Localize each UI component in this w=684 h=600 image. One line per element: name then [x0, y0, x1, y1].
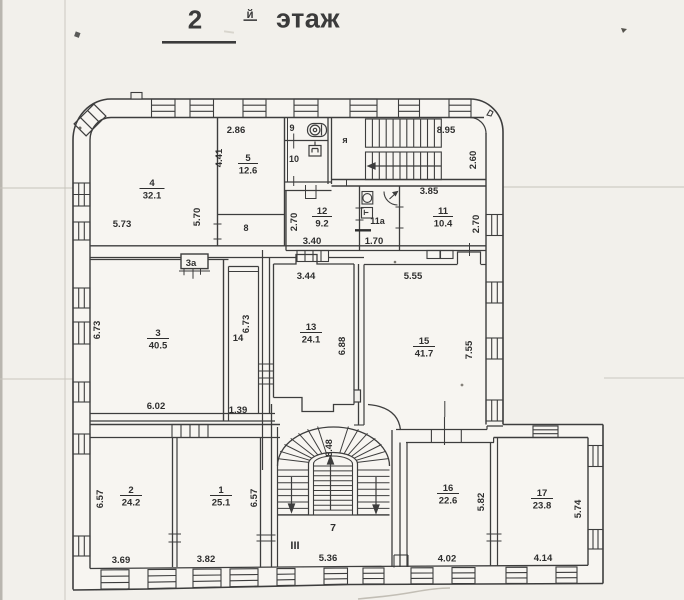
svg-text:3.82: 3.82: [197, 554, 216, 565]
svg-text:III: III: [290, 540, 299, 552]
svg-text:2.86: 2.86: [227, 125, 246, 136]
svg-text:2.60: 2.60: [468, 151, 479, 170]
svg-text:14: 14: [233, 333, 244, 344]
svg-text:4: 4: [149, 178, 155, 189]
svg-text:5.70: 5.70: [192, 208, 203, 227]
svg-text:12: 12: [317, 206, 328, 217]
svg-text:10: 10: [289, 154, 299, 164]
svg-text:16: 16: [443, 483, 454, 494]
svg-text:24.2: 24.2: [122, 498, 141, 509]
svg-text:4.02: 4.02: [438, 554, 457, 565]
svg-text:6.73: 6.73: [241, 315, 252, 334]
svg-text:5: 5: [245, 153, 251, 164]
svg-text:11: 11: [438, 206, 449, 217]
svg-text:этаж: этаж: [276, 4, 340, 34]
svg-text:7.55: 7.55: [464, 340, 475, 359]
svg-text:32.1: 32.1: [143, 191, 162, 202]
svg-text:2.70: 2.70: [289, 213, 300, 232]
svg-text:3.69: 3.69: [112, 555, 131, 566]
svg-text:1: 1: [218, 485, 224, 496]
svg-text:8: 8: [243, 223, 248, 233]
svg-text:5.55: 5.55: [404, 271, 423, 282]
svg-text:8.48: 8.48: [324, 439, 334, 457]
svg-text:5.74: 5.74: [573, 499, 584, 518]
svg-text:15: 15: [419, 336, 430, 347]
svg-text:7: 7: [330, 522, 336, 534]
svg-text:2.70: 2.70: [471, 215, 482, 234]
svg-text:5.73: 5.73: [113, 219, 132, 230]
svg-text:1.70: 1.70: [365, 236, 384, 247]
svg-text:17: 17: [537, 488, 548, 499]
svg-text:10.4: 10.4: [434, 219, 453, 230]
svg-text:3.40: 3.40: [303, 236, 322, 247]
svg-text:5.36: 5.36: [319, 553, 338, 564]
svg-text:23.8: 23.8: [533, 501, 552, 512]
svg-text:2: 2: [188, 5, 202, 35]
svg-text:2: 2: [128, 485, 133, 496]
svg-text:40.5: 40.5: [149, 341, 168, 352]
svg-text:3.44: 3.44: [297, 271, 316, 282]
svg-text:25.1: 25.1: [212, 498, 231, 509]
svg-text:24.1: 24.1: [302, 335, 321, 346]
svg-text:6.88: 6.88: [337, 337, 348, 356]
svg-text:11а: 11а: [370, 216, 386, 226]
svg-text:9.2: 9.2: [315, 219, 328, 230]
svg-text:6.73: 6.73: [92, 321, 103, 340]
svg-text:5.82: 5.82: [476, 493, 487, 512]
svg-text:8.95: 8.95: [437, 125, 456, 136]
svg-text:6.57: 6.57: [95, 490, 106, 509]
svg-text:6.02: 6.02: [147, 401, 166, 412]
svg-text:1.39: 1.39: [229, 405, 248, 416]
svg-text:я: я: [342, 135, 347, 145]
svg-text:9: 9: [289, 123, 294, 133]
svg-text:12.6: 12.6: [239, 166, 258, 177]
svg-text:й: й: [246, 9, 253, 21]
svg-text:4.41: 4.41: [214, 148, 225, 167]
svg-text:22.6: 22.6: [439, 496, 458, 507]
svg-text:13: 13: [306, 322, 317, 333]
svg-text:3а: 3а: [186, 258, 197, 269]
svg-text:3.85: 3.85: [420, 186, 439, 197]
svg-text:4.14: 4.14: [534, 553, 553, 564]
svg-text:6.57: 6.57: [249, 489, 260, 508]
svg-text:41.7: 41.7: [415, 349, 434, 360]
svg-text:3: 3: [155, 328, 160, 339]
